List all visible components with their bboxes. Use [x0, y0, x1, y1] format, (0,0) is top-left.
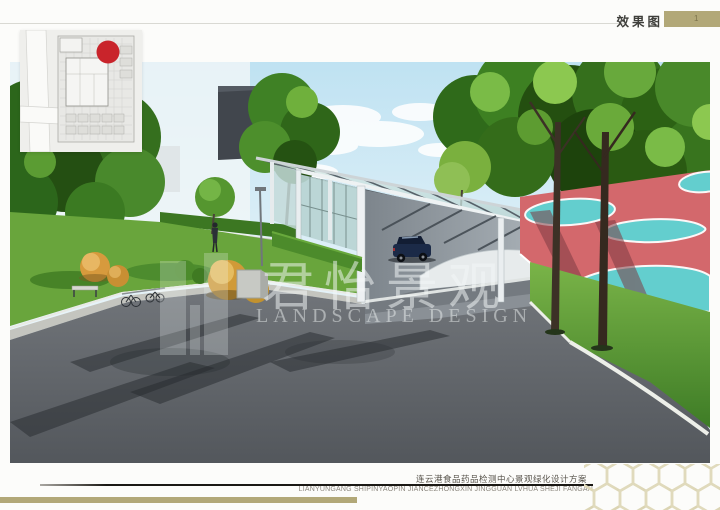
- plan-building-block: [58, 36, 134, 142]
- page-number: 1: [694, 14, 698, 23]
- header-rule: [0, 23, 625, 24]
- presentation-page: 效果图 1: [0, 0, 720, 510]
- location-marker-icon: [97, 41, 120, 64]
- site-plan-svg: [20, 30, 142, 152]
- project-title-en: LIANYUNGANG SHIPINYAOPIN JIANCEZHONGXIN …: [299, 486, 593, 493]
- honeycomb-decoration: [584, 464, 720, 510]
- footer-accent-bar: [0, 497, 357, 503]
- page-section-label: 效果图: [616, 11, 663, 30]
- header-accent-bar: 1: [664, 11, 720, 27]
- site-plan-inset: [20, 30, 142, 152]
- watermark-text-en: LANDSCAPE DESIGN: [256, 305, 556, 328]
- watermark-logo: [160, 253, 240, 361]
